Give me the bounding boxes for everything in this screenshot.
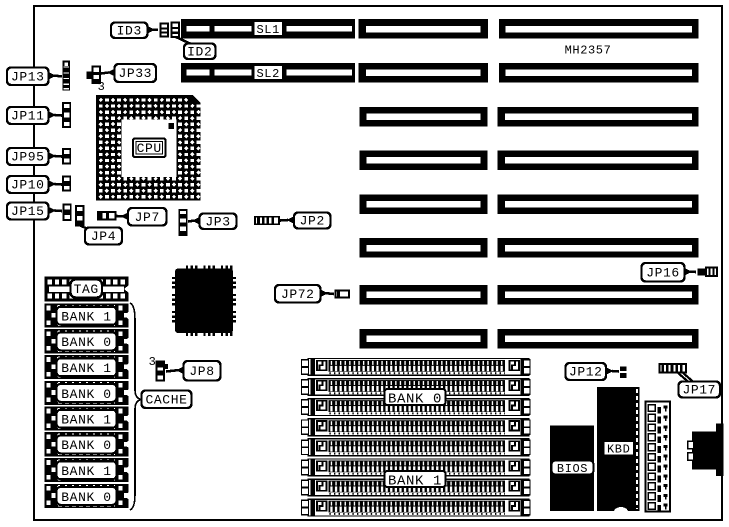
svg-text:JP3: JP3 — [205, 214, 230, 229]
svg-text:BANK 0: BANK 0 — [61, 387, 111, 402]
svg-text:BANK 0: BANK 0 — [388, 391, 442, 407]
svg-text:3: 3 — [149, 355, 157, 369]
svg-text:JP8: JP8 — [189, 364, 214, 379]
svg-text:JP33: JP33 — [118, 66, 152, 81]
svg-text:JP17: JP17 — [682, 383, 716, 398]
svg-text:JP11: JP11 — [11, 109, 45, 124]
svg-text:JP10: JP10 — [11, 178, 45, 193]
svg-text:CACHE: CACHE — [145, 392, 187, 407]
svg-text:BANK 1: BANK 1 — [61, 464, 111, 479]
svg-text:BIOS: BIOS — [557, 462, 588, 476]
svg-text:BANK 1: BANK 1 — [61, 310, 111, 325]
svg-text:SL1: SL1 — [256, 23, 279, 37]
svg-text:MH2357: MH2357 — [565, 44, 612, 58]
svg-text:BANK 0: BANK 0 — [61, 490, 111, 505]
svg-text:JP95: JP95 — [11, 150, 45, 165]
svg-text:3: 3 — [98, 80, 106, 94]
svg-text:SL2: SL2 — [256, 67, 279, 81]
svg-text:BANK 1: BANK 1 — [61, 361, 111, 376]
svg-text:JP2: JP2 — [300, 214, 325, 229]
svg-text:ID2: ID2 — [187, 44, 212, 59]
svg-text:BANK 0: BANK 0 — [61, 335, 111, 350]
svg-text:JP7: JP7 — [135, 210, 160, 225]
svg-text:JP72: JP72 — [281, 287, 315, 302]
svg-text:BANK 1: BANK 1 — [388, 473, 442, 489]
svg-text:BANK 0: BANK 0 — [61, 438, 111, 453]
svg-text:CPU: CPU — [137, 141, 162, 156]
svg-text:ID3: ID3 — [117, 23, 142, 38]
svg-text:TAG: TAG — [74, 282, 99, 297]
svg-text:JP4: JP4 — [91, 229, 116, 244]
svg-text:BANK 1: BANK 1 — [61, 413, 111, 428]
svg-text:JP13: JP13 — [11, 69, 45, 84]
svg-text:JP15: JP15 — [11, 204, 45, 219]
svg-text:JP12: JP12 — [569, 365, 603, 380]
svg-text:KBD: KBD — [607, 443, 630, 457]
svg-text:JP16: JP16 — [646, 265, 680, 280]
